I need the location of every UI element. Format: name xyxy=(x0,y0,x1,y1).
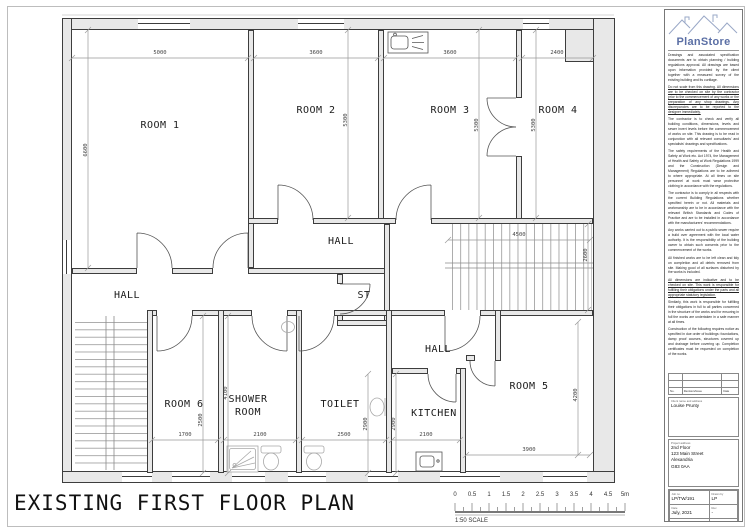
revision-table: No. Revision/Issue Date xyxy=(668,373,739,395)
note: Similarly, this work is responsible for … xyxy=(668,300,739,325)
dimension: 4100 xyxy=(223,386,229,399)
brand-name: PlanStore xyxy=(668,36,739,48)
scale-label: 4.5 xyxy=(604,492,612,498)
plan-linework xyxy=(0,0,750,530)
dimension: 5300 xyxy=(474,118,480,131)
wall xyxy=(378,30,384,220)
wall xyxy=(72,268,137,274)
sheet-border xyxy=(7,6,745,527)
note: The contractor is to comply in all respe… xyxy=(668,191,739,226)
window xyxy=(368,471,398,483)
scale-label: 2.5 xyxy=(536,492,544,498)
client-box: Client name and address Louise Prunty xyxy=(668,397,739,437)
field-label: Drawing no. xyxy=(672,520,707,523)
toilet xyxy=(261,446,281,470)
window xyxy=(232,471,265,483)
window xyxy=(440,471,500,483)
site-line: G83 0AA xyxy=(671,464,736,470)
room-label: ROOM 5 xyxy=(509,381,548,392)
wall xyxy=(296,310,302,473)
window xyxy=(543,471,587,483)
sink-unit xyxy=(388,32,428,53)
basin xyxy=(282,322,295,333)
dimension: 2400 xyxy=(550,50,563,56)
window xyxy=(288,471,326,483)
note: Do not scale from this drawing. All dime… xyxy=(668,85,739,115)
wall xyxy=(466,355,475,361)
dimension: 5000 xyxy=(153,50,166,56)
room-label: TOILET xyxy=(320,399,359,410)
note: Any works carried out to a public sewer … xyxy=(668,228,739,253)
room-label: ST xyxy=(357,290,370,301)
scale-caption: 1:50 SCALE xyxy=(455,518,488,524)
wall xyxy=(337,320,390,326)
scale-label: 5m xyxy=(621,492,629,498)
wall xyxy=(248,218,278,224)
dimension: 5300 xyxy=(531,118,537,131)
note: All finished works are to be left clean … xyxy=(668,256,739,276)
shower-tray xyxy=(227,446,258,472)
site-address-box: Project address 2nd Floor 123 Main Stree… xyxy=(668,439,739,487)
room-label: HALL xyxy=(328,236,354,247)
dimension: 4200 xyxy=(573,388,579,401)
dimension: 3900 xyxy=(522,447,535,453)
scale-label: 0.5 xyxy=(468,492,476,498)
dimension: 3600 xyxy=(443,50,456,56)
wall xyxy=(516,156,522,220)
wall xyxy=(495,310,501,361)
dimension: 5300 xyxy=(343,113,349,126)
dimension: 2100 xyxy=(419,432,432,438)
window xyxy=(523,18,549,30)
room-label: HALL xyxy=(425,344,451,355)
note: Construction of the following requires n… xyxy=(668,327,739,357)
planstore-logo-icon xyxy=(668,12,739,36)
field-label: Scale xyxy=(712,520,736,523)
wall xyxy=(172,268,213,274)
room-label: ROOM 1 xyxy=(140,120,179,131)
door-arcs xyxy=(137,98,516,402)
scale-label: 1 xyxy=(487,492,490,498)
wall xyxy=(248,268,390,274)
field-value: July, 2021 xyxy=(672,510,707,516)
dimension: 2900 xyxy=(363,417,369,430)
wall xyxy=(593,18,615,483)
page-title: EXISTING FIRST FLOOR PLAN xyxy=(14,491,355,515)
room-label: ROOM 6 xyxy=(164,399,203,410)
room-label: HALL xyxy=(114,290,140,301)
scale-bar-ruler xyxy=(455,503,625,515)
room-label: SHOWER xyxy=(228,394,267,405)
note: Drawings and associated specification do… xyxy=(668,53,739,83)
wall xyxy=(565,29,594,62)
kitchen-sink xyxy=(416,452,442,471)
fields-grid: Job no. LP/TW/191 Drawn by LP Date July,… xyxy=(668,489,739,522)
scale-label: 2 xyxy=(521,492,524,498)
dimension: 4500 xyxy=(512,232,525,238)
wall xyxy=(147,310,153,473)
general-notes: Drawings and associated specification do… xyxy=(668,53,739,371)
toilet xyxy=(304,446,324,470)
revision-col-date: Date xyxy=(722,388,739,395)
room-label: ROOM 2 xyxy=(296,105,335,116)
note: The safety requirements of the Health an… xyxy=(668,149,739,189)
basin xyxy=(370,398,385,416)
window xyxy=(62,240,72,274)
wall xyxy=(460,368,466,473)
revision-col-no: No. xyxy=(669,388,683,395)
dimension: 1700 xyxy=(178,432,191,438)
wall xyxy=(337,274,343,284)
scale-label: 3.5 xyxy=(570,492,578,498)
revision-col-desc: Revision/Issue xyxy=(682,388,722,395)
field-value: LP xyxy=(712,496,736,502)
room-label: KITCHEN xyxy=(411,408,457,419)
scale-label: 1.5 xyxy=(502,492,510,498)
dimension: 2500 xyxy=(337,432,350,438)
window xyxy=(172,471,210,483)
wall xyxy=(386,310,392,473)
wall xyxy=(248,30,254,268)
wall xyxy=(392,368,428,374)
room-label: ROOM 3 xyxy=(430,105,469,116)
divider xyxy=(668,50,739,51)
wall xyxy=(516,30,522,98)
dimension: 2600 xyxy=(583,248,589,261)
dimension: 3600 xyxy=(309,50,322,56)
field-value: - xyxy=(712,510,736,516)
floor-plan-sheet: ROOM 1 ROOM 2 ROOM 3 ROOM 4 HALL HALL ST… xyxy=(0,0,750,530)
client-name: Louise Prunty xyxy=(671,403,736,409)
stairs-left xyxy=(75,316,147,470)
title-block: PlanStore Drawings and associated specif… xyxy=(664,9,743,522)
dimension: 6600 xyxy=(83,143,89,156)
field-value: LP/TW/191 xyxy=(672,496,707,502)
room-label: ROOM xyxy=(235,407,261,418)
dimension: 2900 xyxy=(391,417,397,430)
dimension: 2500 xyxy=(198,413,204,426)
window xyxy=(298,18,344,30)
window xyxy=(138,18,190,30)
note: All dimensions are indicative and to be … xyxy=(668,278,739,298)
wall xyxy=(431,218,593,224)
dimension: 2100 xyxy=(253,432,266,438)
note: The contractor is to check and verify al… xyxy=(668,117,739,147)
scale-label: 0 xyxy=(453,492,456,498)
room-label: ROOM 4 xyxy=(538,105,577,116)
scale-label: 4 xyxy=(589,492,592,498)
scale-label: 3 xyxy=(555,492,558,498)
